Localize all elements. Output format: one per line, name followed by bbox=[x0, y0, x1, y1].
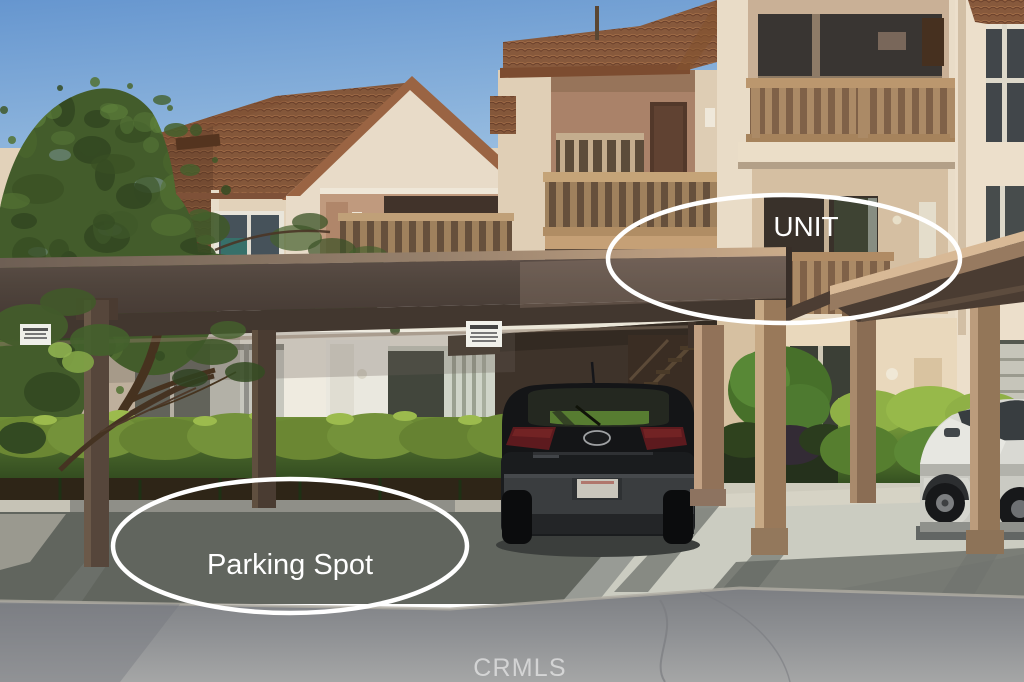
svg-text:UNIT: UNIT bbox=[773, 211, 838, 242]
svg-text:Parking Spot: Parking Spot bbox=[207, 549, 373, 581]
svg-text:CRMLS: CRMLS bbox=[473, 654, 567, 682]
